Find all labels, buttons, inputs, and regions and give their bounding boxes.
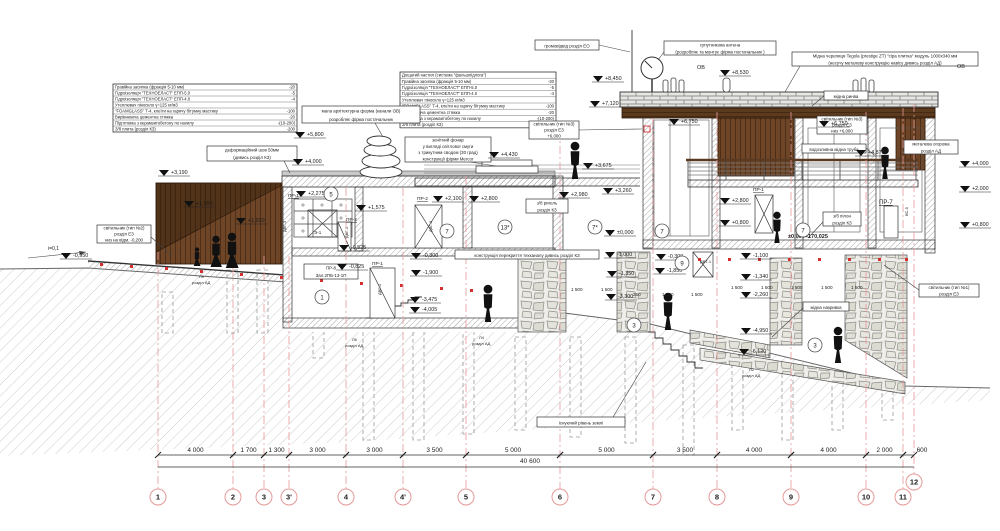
spec-row-value: -100 — [546, 104, 555, 109]
elevation-value: -0,525 — [351, 245, 366, 251]
inner-dim-value: 1 500 — [691, 292, 703, 297]
callout-text: (дивись розділ КЗ) — [233, 155, 271, 160]
spec-row-value: -20 — [548, 79, 555, 84]
callout-text: (розробляє та монтує фірма постачальник … — [675, 49, 765, 54]
drawing-label: розділ АД — [742, 373, 761, 378]
callout-text: розділ КЗ — [537, 207, 557, 212]
drawing-label: розділ АД — [472, 341, 491, 346]
spec-row-text: Підготовка з керамзитобетону по нахилу — [115, 120, 195, 125]
elevation-value: -1,100 — [753, 253, 768, 259]
elevation-value: +0,800 — [972, 222, 989, 228]
person-head — [834, 327, 843, 336]
spec-row-value: -20 — [289, 114, 296, 119]
elevation-value: +6,750 — [831, 121, 848, 127]
drawing-label: ПР-2 — [417, 196, 428, 202]
drawing-label: Л2 — [749, 367, 755, 372]
callout-text: з трикутним сводом (30 град) — [418, 150, 478, 155]
inner-dim-value: 1 500 — [731, 285, 743, 290]
person-head — [195, 247, 199, 251]
callout-text: низ +6,000 — [831, 129, 853, 134]
spec-row-text: Гравійна засипка (фракція 5-10 мм) — [115, 84, 185, 89]
dim-value: 3 000 — [366, 447, 383, 454]
drawing-label: ПР-2 — [346, 217, 357, 223]
elevation-value: -1,900 — [423, 270, 438, 276]
spec-row-value: -100 — [287, 108, 296, 113]
elevation-value: +2,800 — [732, 198, 749, 204]
grid-bubble-label: 6 — [558, 493, 562, 502]
person-head — [228, 233, 236, 241]
callout-text: з/б ригель — [537, 200, 558, 205]
callout-text: розділ АД — [921, 148, 941, 153]
elevation-value: +4,000 — [305, 159, 322, 165]
callout-text: розділ ЕЗ — [114, 232, 134, 237]
spec-row-text: Гідроізоляція "ТЕХНОЕЛАСТ" ЕПП-5.0 — [402, 85, 478, 90]
callout-text: супутникова антена — [700, 42, 741, 47]
elevation-value: +1,575 — [368, 205, 385, 211]
spec-row-text: Гравійна засипка (фракція 5-10 мм) — [402, 79, 472, 84]
grid-bubble-label: 7 — [651, 493, 655, 502]
spec-row-text: Гідроізоляція "ТЕХНОЕЛАСТ" ЕПП-4.0 — [115, 96, 191, 101]
callout-text: мідна накривка — [810, 305, 842, 310]
elevation-value: -4,005 — [422, 307, 437, 313]
elevation-value: -6,120 — [751, 349, 766, 355]
drawing-label: ДВТ-1 — [700, 259, 712, 264]
drawing-label: ПР-7 — [879, 200, 893, 206]
callout-text: зенітний фонар — [432, 138, 464, 143]
callout-text: конструкція перекриття техканалу дивись … — [474, 253, 580, 258]
callout-text: водозливна мідна труба — [809, 147, 859, 152]
callout-text: (несучу металеву конструкцію навісу диви… — [828, 60, 942, 65]
dim-value: 2 000 — [876, 447, 893, 454]
elevation-value: -0,825 — [349, 264, 364, 270]
callout-text: деформаційний шов 50мм — [225, 148, 279, 153]
elevation-value: -0,300 — [423, 253, 438, 259]
drawing-label: ДВГ-1 — [377, 283, 382, 295]
elevation-value: +8,450 — [605, 76, 622, 82]
inner-dim-value: 1 500 — [791, 285, 803, 290]
spec-row-value: -200 — [287, 126, 296, 131]
grid-bubble-label: 8 — [715, 493, 719, 502]
dim-value: 4 000 — [820, 447, 837, 454]
elevation-value: -1,000 — [617, 252, 632, 258]
callout-text: розділ ЕЗ — [939, 291, 959, 296]
spec-row-text: Утеплювач піноскло γ=125 кг/м3 — [115, 102, 178, 107]
inner-dim-value: 1 500 — [601, 287, 613, 292]
callout-text: низ на відм. -0,200 — [105, 238, 144, 243]
spec-row-text: Гідроізоляція "ТЕХНОЕЛАСТ" ЕПП-5.0 — [115, 90, 191, 95]
drawing-label: ОВ — [957, 64, 965, 70]
elevation-value: +3,260 — [615, 188, 632, 194]
callout-text: конструкції фірми Mercor — [423, 156, 474, 161]
dim-value: 4 000 — [746, 447, 763, 454]
elevation-value: +3,675 — [595, 163, 612, 169]
wood-fascia — [622, 107, 935, 118]
grid-bubble-label: 3 — [262, 493, 266, 502]
drawing-label: Э-1 — [314, 230, 322, 235]
elevation-value: -4,950 — [753, 328, 768, 334]
drawing-label: Л9 — [199, 274, 205, 279]
drawing-label: Л4 — [479, 335, 485, 340]
grid-bubble-label: 4' — [400, 493, 406, 502]
drawing-label: ОВ — [697, 65, 705, 71]
drawing-label: ВС-5 — [904, 206, 909, 216]
person-head — [484, 285, 493, 294]
elevation-value: +4,870 — [868, 150, 885, 156]
grid-bubble-label: 10 — [862, 493, 870, 502]
grid-bubble-label: 3' — [286, 493, 292, 502]
drawing-svg: 1233'44'567891011124 0001 7001 3003 0003… — [0, 0, 1000, 531]
drawing-label: розділ АД — [192, 280, 211, 285]
elevation-value: -3,300 — [618, 294, 633, 300]
drawing-label: ПР-1 — [372, 261, 383, 267]
elevation-value: -1,350 — [619, 271, 634, 277]
person-head — [212, 236, 219, 243]
elevation-value: +7,120 — [602, 101, 619, 107]
inner-dim-value: 1 500 — [851, 285, 863, 290]
spec-row-text: "FOAMGLASS" Т-4, клеїти на гарячу бітумн… — [115, 108, 219, 113]
grid-bubble-label: 1 — [156, 493, 160, 502]
elevation-value: +4,430 — [501, 152, 518, 158]
inner-dim-value: 1 500 — [821, 285, 833, 290]
total-dim-value: 40 600 — [520, 458, 540, 465]
dim-value: 3 500 — [677, 447, 694, 454]
elevation-value: +2,000 — [972, 186, 989, 192]
spec-row-value: -20 — [289, 84, 296, 89]
spec-row-value: -(10-200) — [537, 116, 555, 121]
elevation-value: +1,920 — [248, 218, 265, 224]
spec-row-value: -20 — [548, 110, 555, 115]
dim-value: 4 000 — [187, 447, 204, 454]
drawing-label: ДВГ-3 — [428, 220, 433, 232]
spec-row-text: Вирівнююча цементна стяжка — [115, 114, 174, 119]
drawing-label: ПР-1 — [288, 193, 299, 199]
elevation-value: -1,340 — [753, 274, 768, 280]
grid-bubble-label: 12 — [910, 478, 918, 487]
callout-text: мала архітектурна форма (канали ОВ) — [322, 108, 401, 113]
person-head — [773, 212, 780, 219]
person-head — [571, 142, 580, 151]
elevation-value: -3,475 — [422, 297, 437, 303]
callout-text: ПР-8 — [326, 266, 337, 271]
drawing-label: ПР-1 — [753, 187, 764, 193]
grid-bubble-label: 5 — [464, 493, 468, 502]
elevation-value: -2,260 — [753, 292, 768, 298]
ref-circle-label: 13* — [500, 225, 510, 231]
grid-bubble-label: 9 — [789, 493, 793, 502]
callout-text: розділ ЕЗ — [544, 128, 564, 133]
callout-text: громовідвід розділ ЕО — [544, 44, 590, 49]
callout-text: існуючий рівень землі — [559, 421, 603, 426]
callout-text: +6,000 — [547, 134, 561, 139]
elevation-value: +5,800 — [307, 132, 324, 138]
grid-bubble-label: 11 — [899, 493, 907, 502]
elevation-value: +6,750 — [681, 119, 698, 125]
callout-text: світильник (тип №1) — [929, 285, 971, 290]
callout-text: Зал.2ПБ-13-1П — [316, 273, 347, 278]
spec-row-text: Гідроізоляція "ТЕХНОЕЛАСТ" ЕПП-4.0 — [402, 91, 478, 96]
elevation-value: +3,190 — [171, 170, 188, 176]
dim-value: 3 500 — [426, 447, 443, 454]
dim-value: 600 — [917, 447, 928, 454]
elevation-value: +4,000 — [972, 161, 989, 167]
elevation-value: +2,800 — [481, 196, 498, 202]
elevation-value: +0,800 — [732, 220, 749, 226]
callout-text: світильник (тип №3) — [534, 122, 576, 127]
callout-text: світильник (тип №2) — [104, 226, 146, 231]
spec-row-value: -(10-200) — [278, 120, 296, 125]
drawing-label: ДВГ-1 — [344, 226, 349, 238]
callout-text: розробляє фірма постачальник — [329, 117, 393, 122]
spec-row-text: Дощатий настил (система "фальшпідлога") — [402, 73, 487, 78]
elevation-value: +2,275 — [308, 191, 325, 197]
elevation-value: +1,900 — [196, 201, 213, 207]
dim-value: 5 000 — [598, 447, 615, 454]
dim-value: 3 000 — [309, 447, 326, 454]
dim-value: 1 300 — [268, 447, 285, 454]
dim-value: 1 700 — [240, 447, 257, 454]
inner-dim-value: 250 — [633, 292, 641, 297]
drawing-label: ДВГ-3 — [282, 220, 287, 232]
dim-value: 5 000 — [505, 447, 522, 454]
drawing-label: Л6 — [352, 337, 358, 342]
callout-text: розділ КЗ — [832, 220, 852, 225]
ref-circle-label: 7* — [592, 225, 598, 231]
drawing-label: розділ АД — [345, 343, 364, 348]
elevation-value: ±0,000 — [617, 230, 633, 236]
elevation-value: +2,980 — [571, 192, 588, 198]
callout-text: мідна ринва — [834, 94, 859, 99]
drawing-label: і=0,1 — [48, 246, 59, 252]
spec-row-text: Утеплювач піноскло γ=125 кг/м3 — [402, 97, 465, 102]
section-drawing-sheet: Розріз 2-2 — [0, 0, 1000, 531]
spec-row-text: З/б плита (розділ КЗ) — [115, 126, 156, 131]
copper-roof — [620, 92, 938, 107]
grid-bubble-label: 2 — [231, 493, 235, 502]
inner-dim-value: 1 500 — [761, 285, 773, 290]
callout-text: у вигляді світлової смуги — [423, 144, 474, 149]
elevation-value: +2,100 — [445, 196, 462, 202]
elevation-value: +8,530 — [732, 70, 749, 76]
callout-text: металева огорожа — [912, 141, 950, 146]
inner-dim-value: 1 500 — [571, 287, 583, 292]
inner-dim-value: 1 500 — [662, 292, 674, 297]
callout-text: Мідна черепиця Tegola (prestige ZT) "сір… — [813, 53, 957, 58]
elevation-value: -0,950 — [73, 253, 88, 259]
callout-text: з/б пілон — [833, 213, 851, 218]
